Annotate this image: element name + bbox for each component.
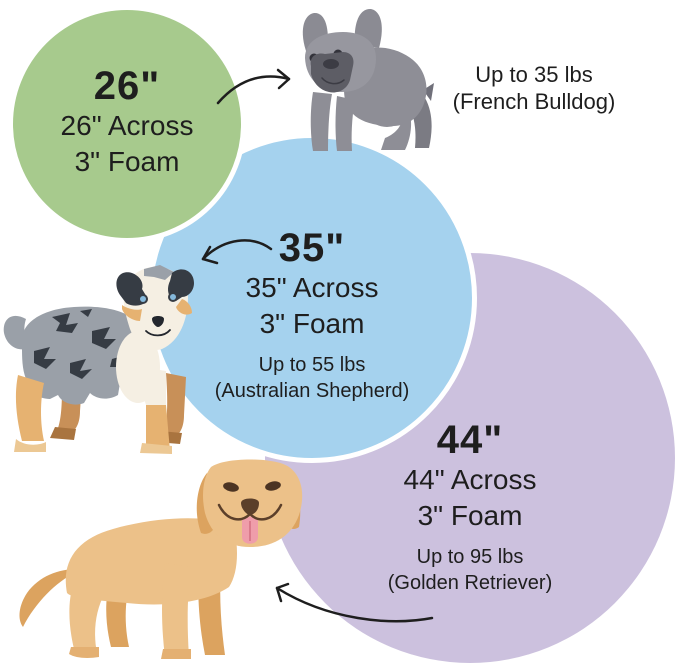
bed-foam-label: 3" Foam bbox=[147, 306, 477, 342]
bed-breed-label: (Golden Retriever) bbox=[265, 570, 675, 596]
french-bulldog-icon bbox=[287, 8, 435, 158]
bed-across-label: 26" Across bbox=[10, 108, 244, 144]
bed-weight-label: Up to 35 lbs bbox=[420, 61, 648, 88]
bed-35-text-block: 35" 35" Across 3" Foam Up to 55 lbs (Aus… bbox=[147, 226, 477, 404]
bed-weight-label: Up to 55 lbs bbox=[147, 352, 477, 378]
bed-breed-label: (Australian Shepherd) bbox=[147, 378, 477, 404]
bed-size-label: 35" bbox=[147, 226, 477, 270]
bed-across-label: 35" Across bbox=[147, 270, 477, 306]
bed-26-annotation: Up to 35 lbs (French Bulldog) bbox=[420, 61, 648, 115]
bed-breed-label: (French Bulldog) bbox=[420, 88, 648, 115]
dog-bed-size-infographic: 26" 26" Across 3" Foam Up to 35 lbs (Fre… bbox=[0, 0, 679, 668]
bed-weight-label: Up to 95 lbs bbox=[265, 544, 675, 570]
bed-size-label: 26" bbox=[10, 64, 244, 108]
bed-26-text-block: 26" 26" Across 3" Foam bbox=[10, 64, 244, 180]
bed-foam-label: 3" Foam bbox=[10, 144, 244, 180]
bed-44-text-block: 44" 44" Across 3" Foam Up to 95 lbs (Gol… bbox=[265, 418, 675, 596]
bed-size-label: 44" bbox=[265, 418, 675, 462]
bed-foam-label: 3" Foam bbox=[265, 498, 675, 534]
bed-across-label: 44" Across bbox=[265, 462, 675, 498]
